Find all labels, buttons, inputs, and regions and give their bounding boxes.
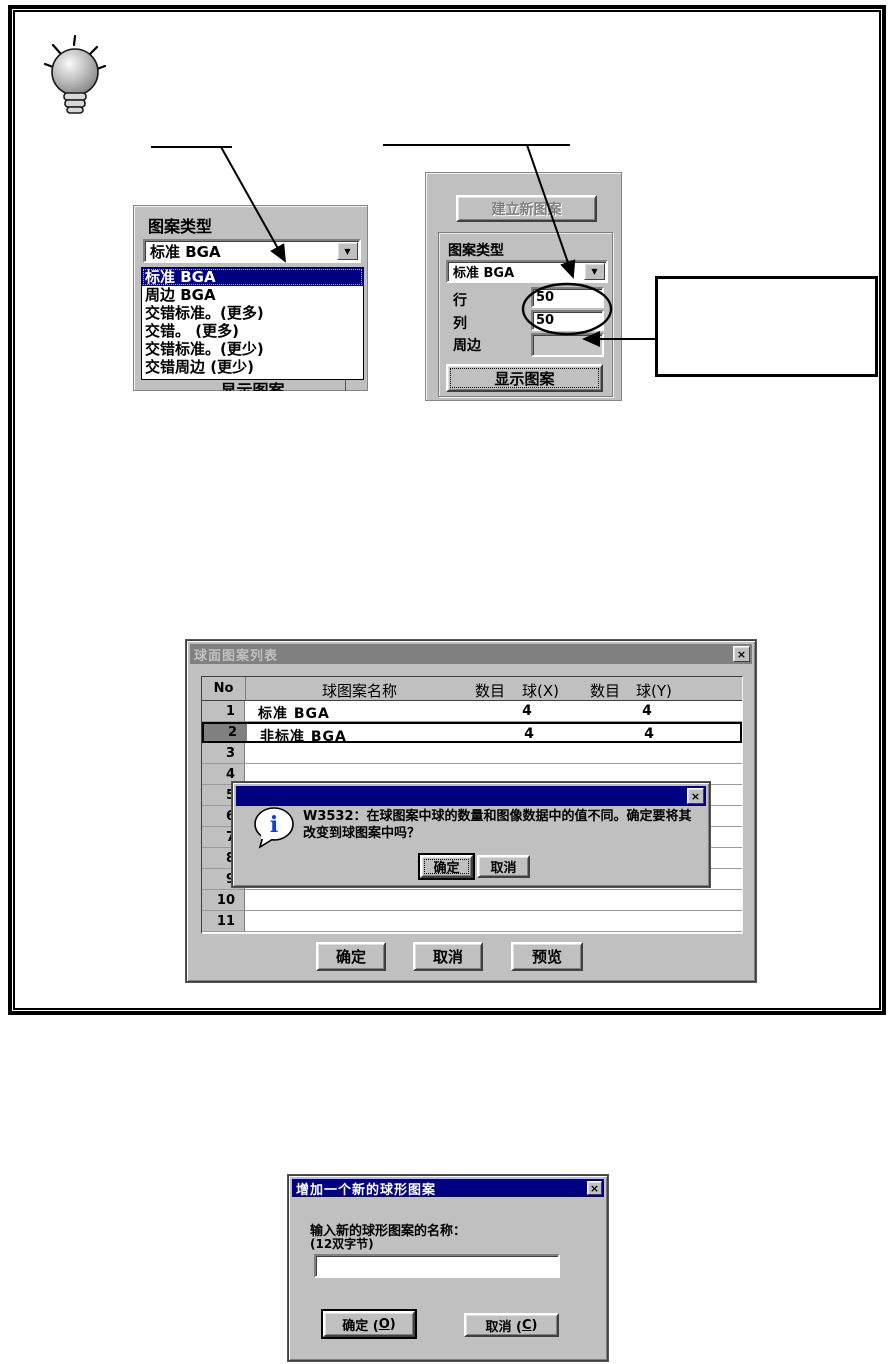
dialog-titlebar[interactable]: 增加一个新的球形图案 × [292,1179,604,1197]
row-number-cell: 11 [202,911,245,932]
lightbulb-icon [40,34,110,126]
ok-mnemonic: O [379,1317,390,1332]
row-data-cell[interactable] [245,890,742,911]
row-label: 行 [453,290,467,310]
table-row[interactable]: 3 [202,743,742,764]
manual-page: 图案类型 标准 BGA ▼ 标准 BGA 周边 BGA 交错标准。(更多) 交错… [0,0,896,1364]
cancel-label-end: ) [532,1318,538,1333]
row-data-cell[interactable] [245,911,742,932]
row-data-cell[interactable] [245,743,742,764]
chevron-down-icon[interactable]: ▼ [337,242,358,260]
preview-button[interactable]: 预览 [511,942,583,971]
row-number-cell: 1 [202,701,245,722]
row-data-cell[interactable]: 非标准 BGA 4 4 [247,724,740,741]
ball-x-value: 4 [513,703,541,719]
clipped-show-pattern-button[interactable]: 显示图案 [141,380,364,391]
header-count-y: 数目 [590,680,620,701]
table-row[interactable]: 1 标准 BGA 4 4 [202,701,742,722]
pattern-type-label: 图案类型 [448,240,504,260]
dropdown-item[interactable]: 交错标准。(更多) [142,304,363,322]
row-number-cell: 2 [204,724,247,741]
ball-y-value: 4 [633,703,661,719]
row-count-input[interactable] [531,287,604,308]
cancel-mnemonic: C [522,1318,532,1333]
ok-label-end: ) [390,1317,396,1332]
pattern-type-combobox[interactable]: 标准 BGA ▼ [143,239,361,263]
table-header: No 球图案名称 数目 球(X) 数目 球(Y) [202,677,742,701]
table-row[interactable]: 11 [202,911,742,932]
show-pattern-button[interactable]: 显示图案 [446,364,603,392]
column-count-input[interactable] [531,310,604,331]
warning-message-dialog: × i W3532：在球图案中球的数量和图像数据中的值不同。确定要将其改变到球图… [232,782,710,887]
dropdown-item[interactable]: 交错标准。(更少) [142,340,363,358]
dialog-title: 球面图案列表 [194,645,278,664]
close-icon[interactable]: × [587,1181,602,1195]
cancel-button[interactable]: 取消 [477,855,530,878]
row-data-cell[interactable]: 标准 BGA 4 4 [245,701,742,722]
divider [345,380,346,391]
callout-note-box [655,276,878,377]
header-count-x: 数目 [475,680,505,701]
header-no: No [202,677,246,700]
ok-label: 确定 ( [342,1315,378,1334]
ok-button[interactable]: 确定 [316,942,386,971]
ball-y-value: 4 [635,726,663,742]
chevron-down-icon[interactable]: ▼ [584,263,605,280]
pattern-name-input[interactable] [314,1254,560,1278]
cancel-button[interactable]: 取消 [413,942,483,971]
pattern-settings-panel: 建立新图案 图案类型 标准 BGA ▼ 行 列 周边 显示图案 [425,172,622,401]
dropdown-item[interactable]: 周边 BGA [142,286,363,304]
pattern-type-combobox[interactable]: 标准 BGA ▼ [446,260,608,283]
ok-button[interactable]: 确定 (O) [323,1311,415,1337]
pattern-type-dropdown-panel: 图案类型 标准 BGA ▼ 标准 BGA 周边 BGA 交错标准。(更多) 交错… [133,205,368,391]
svg-text:i: i [270,812,278,838]
header-ball-x: 球(X) [522,680,559,701]
close-icon[interactable]: × [733,646,750,662]
ok-button[interactable]: 确定 [420,855,473,878]
dropdown-item[interactable]: 交错。 (更多) [142,322,363,340]
pattern-type-groupbox: 图案类型 标准 BGA ▼ 行 列 周边 显示图案 [438,232,613,397]
combobox-value: 标准 BGA [145,241,221,262]
column-label: 列 [453,313,467,333]
dialog-titlebar[interactable]: 球面图案列表 × [190,644,752,664]
close-icon[interactable]: × [687,788,704,804]
info-icon: i [251,805,297,851]
dropdown-item[interactable]: 标准 BGA [142,268,363,286]
pattern-type-label: 图案类型 [148,213,212,237]
cancel-button[interactable]: 取消 (C) [464,1313,559,1337]
cancel-label: 取消 ( [486,1316,522,1335]
ball-x-value: 4 [515,726,543,742]
row-number-cell: 3 [202,743,245,764]
header-ball-y: 球(Y) [636,680,672,701]
row-number-cell: 10 [202,890,245,911]
pattern-name: 标准 BGA [258,703,330,723]
dropdown-item[interactable]: 交错周边 (更少) [142,358,363,376]
dialog-titlebar[interactable]: × [236,786,706,806]
prompt-note: (12双字节) [310,1235,374,1252]
header-name: 球图案名称 [322,680,397,701]
create-new-pattern-button[interactable]: 建立新图案 [456,195,597,222]
table-row[interactable]: 10 [202,890,742,911]
message-text: W3532：在球图案中球的数量和图像数据中的值不同。确定要将其改变到球图案中吗？ [303,808,699,842]
perimeter-input[interactable] [531,333,604,357]
combobox-value: 标准 BGA [448,262,514,281]
add-new-sphere-pattern-dialog: 增加一个新的球形图案 × 输入新的球形图案的名称： (12双字节) 确定 (O)… [288,1175,608,1361]
table-row[interactable]: 2 非标准 BGA 4 4 [202,722,742,743]
perimeter-label: 周边 [453,335,481,355]
dialog-title: 增加一个新的球形图案 [296,1179,436,1198]
pattern-type-dropdown-list: 标准 BGA 周边 BGA 交错标准。(更多) 交错。 (更多) 交错标准。(更… [141,267,364,380]
